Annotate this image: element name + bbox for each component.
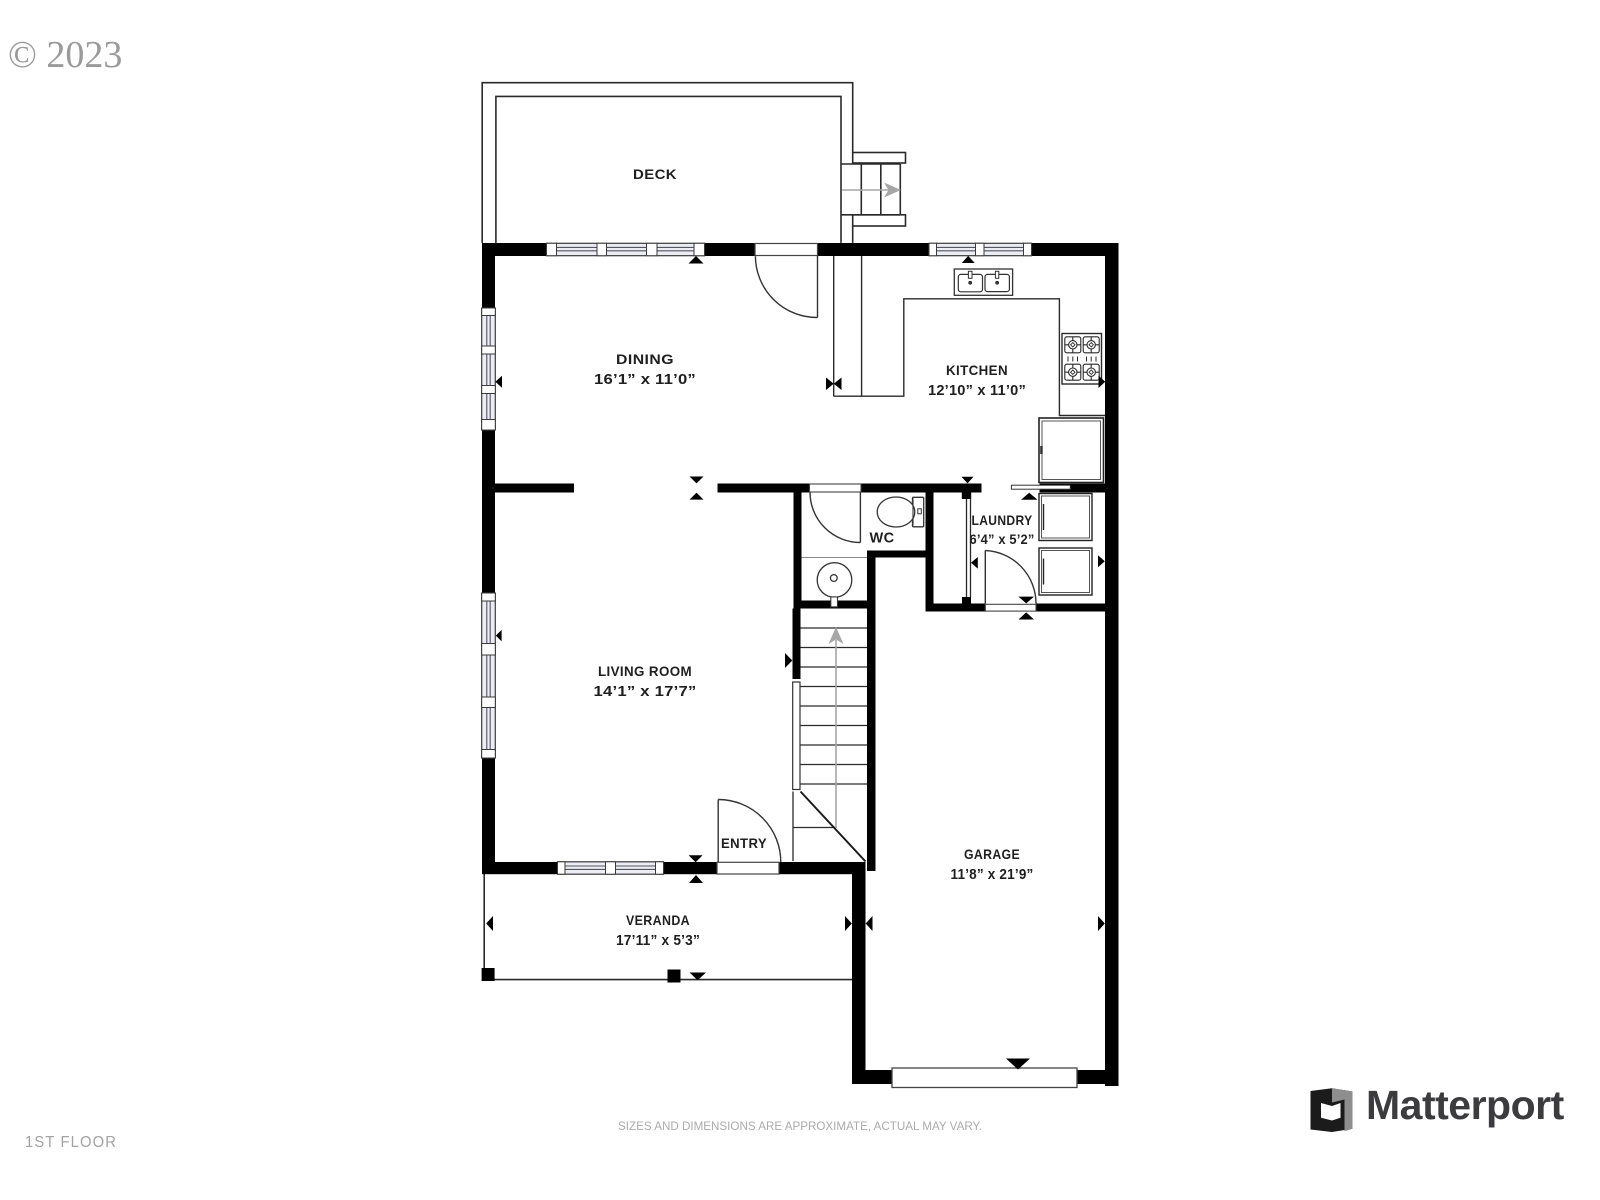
svg-text:11’8” x 21’9”: 11’8” x 21’9”: [951, 867, 1034, 883]
svg-text:DECK: DECK: [633, 166, 677, 182]
svg-text:Matterport: Matterport: [1366, 1082, 1565, 1128]
svg-text:12’10” x 11’0”: 12’10” x 11’0”: [928, 383, 1026, 399]
svg-text:KITCHEN: KITCHEN: [946, 362, 1008, 378]
svg-text:WC: WC: [870, 530, 895, 547]
svg-text:LIVING ROOM: LIVING ROOM: [598, 663, 692, 679]
svg-text:DINING: DINING: [616, 351, 674, 367]
svg-text:VERANDA: VERANDA: [626, 912, 690, 928]
svg-text:© 2023: © 2023: [8, 34, 122, 76]
svg-text:16’1” x 11’0”: 16’1” x 11’0”: [594, 372, 696, 388]
svg-text:17’11” x 5’3”: 17’11” x 5’3”: [616, 933, 700, 949]
svg-text:6’4” x 5’2”: 6’4” x 5’2”: [970, 531, 1035, 547]
svg-text:LAUNDRY: LAUNDRY: [972, 512, 1033, 528]
svg-text:14’1” x 17’7”: 14’1” x 17’7”: [594, 684, 697, 700]
svg-text:SIZES AND DIMENSIONS ARE APPRO: SIZES AND DIMENSIONS ARE APPROXIMATE, AC…: [618, 1121, 982, 1133]
svg-text:1ST FLOOR: 1ST FLOOR: [25, 1134, 117, 1151]
svg-text:ENTRY: ENTRY: [721, 836, 767, 851]
svg-text:GARAGE: GARAGE: [964, 846, 1020, 862]
